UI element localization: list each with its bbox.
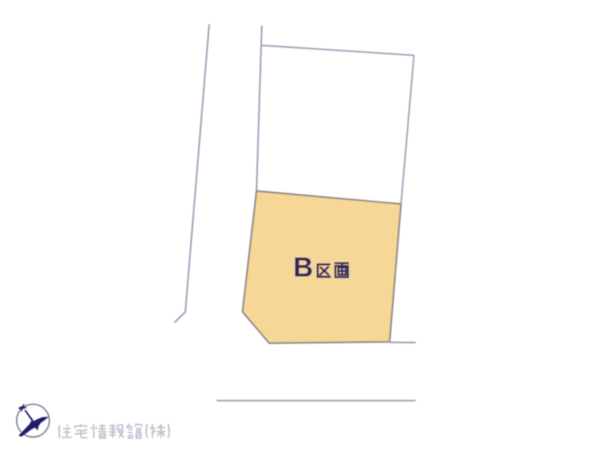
svg-text:B: B [293,251,313,282]
